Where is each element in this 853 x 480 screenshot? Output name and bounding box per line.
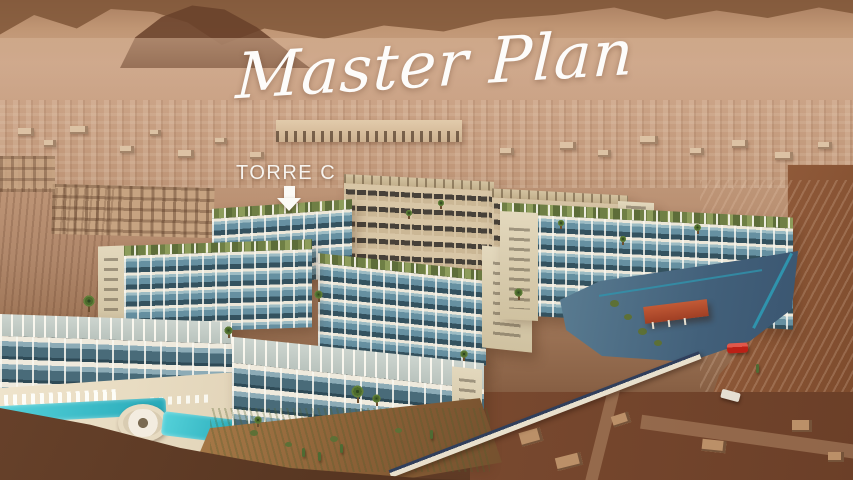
hedge bbox=[654, 340, 662, 346]
building-facade bbox=[344, 183, 494, 270]
street-house bbox=[701, 439, 726, 453]
town-house bbox=[818, 142, 832, 149]
town-house bbox=[598, 150, 611, 157]
down-arrow-icon bbox=[284, 186, 295, 198]
palm-tree-icon bbox=[692, 222, 703, 233]
building-endwall bbox=[98, 246, 124, 329]
town-house bbox=[178, 150, 194, 158]
palm-tree-icon bbox=[556, 218, 566, 228]
palm-tree-icon bbox=[80, 292, 98, 310]
town-house bbox=[500, 148, 514, 155]
cactus bbox=[756, 364, 759, 373]
back-building-1 bbox=[344, 174, 494, 270]
town-house bbox=[120, 146, 134, 153]
palm-tree-icon bbox=[348, 382, 367, 401]
hedge bbox=[624, 314, 632, 320]
garden-bush bbox=[285, 442, 292, 447]
hedge bbox=[638, 328, 647, 335]
sepia-apartment-block bbox=[0, 156, 55, 192]
garden-bush bbox=[395, 428, 402, 433]
town-house bbox=[732, 140, 748, 148]
palm-tree-icon bbox=[370, 392, 383, 405]
town-house bbox=[70, 126, 88, 134]
town-house bbox=[150, 130, 161, 136]
town-house bbox=[250, 152, 264, 159]
arched-row-structure bbox=[276, 120, 462, 142]
red-car bbox=[727, 342, 748, 353]
palm-tree-icon bbox=[618, 234, 628, 244]
cactus bbox=[430, 430, 433, 439]
cactus bbox=[318, 452, 321, 461]
town-house bbox=[215, 138, 227, 144]
town-house bbox=[18, 128, 34, 136]
palm-tree-icon bbox=[312, 288, 325, 301]
palm-tree-icon bbox=[404, 208, 414, 218]
building-endwall bbox=[500, 211, 538, 321]
town-house bbox=[560, 142, 576, 150]
hedge bbox=[610, 300, 619, 307]
cactus bbox=[302, 448, 305, 457]
garden-bush bbox=[330, 436, 338, 442]
palm-tree-icon bbox=[252, 414, 264, 426]
street-house bbox=[828, 452, 844, 462]
town-house bbox=[44, 140, 56, 147]
down-arrow-icon bbox=[277, 198, 301, 211]
garden-bush bbox=[250, 430, 258, 436]
street-house bbox=[792, 420, 812, 432]
master-plan-render: Master Plan TORRE C bbox=[0, 0, 853, 480]
town-house bbox=[690, 148, 704, 155]
distant-town bbox=[0, 100, 853, 188]
cactus bbox=[340, 444, 343, 453]
palm-tree-icon bbox=[458, 348, 470, 360]
palm-tree-icon bbox=[222, 324, 235, 337]
torre-c-label: TORRE C bbox=[236, 162, 346, 185]
palm-tree-icon bbox=[512, 286, 525, 299]
town-house bbox=[640, 136, 658, 144]
town-house bbox=[775, 152, 793, 160]
palm-tree-icon bbox=[436, 198, 446, 208]
